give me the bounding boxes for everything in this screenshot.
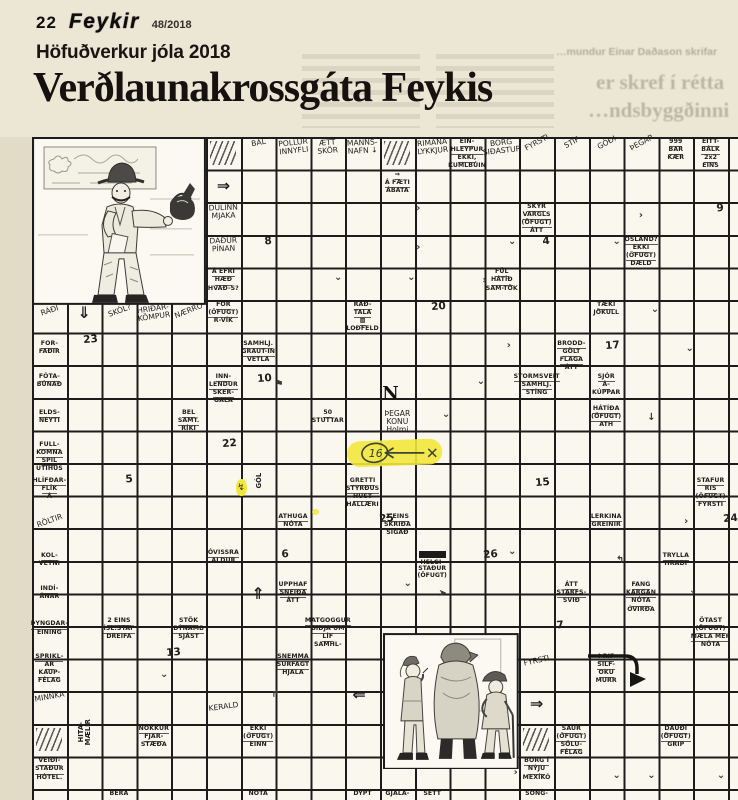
handwritten-clue: ÓVISSRAALDUR: [206, 548, 241, 565]
pen-mark: ⌄: [599, 235, 634, 248]
handwritten-clue: SJÓRÁ-KÚPPAR: [589, 372, 624, 397]
pen-mark: ›: [669, 515, 704, 528]
handwritten-clue: HÁTÍÐA(ÖFUGT)ATH: [589, 404, 624, 429]
handwritten-clue: ELDS-NEYTI: [32, 408, 67, 425]
handwritten-clue: VEIÐI-STAÐURHÓTEL.: [32, 756, 67, 781]
curved-arrow-doodle: [585, 646, 647, 690]
handwritten-clue: ⇒Á FÆTIÁBATA: [380, 170, 415, 195]
redacted-clue: HELGI-STAÐUR(ÖFUGT): [415, 548, 450, 580]
handwritten-clue: 999BARKÆR: [658, 137, 693, 162]
handwritten-clue: SPRIKL-ARKAUP-FÉLAG: [32, 652, 67, 685]
handwritten-clue: BRODD-GÖLTFLAGAÁTT: [554, 339, 589, 372]
handwritten-clue: NÓTA: [241, 789, 276, 798]
handwritten-clue: TRYLLAHRAÐI: [658, 551, 693, 568]
vertical-clue: HITA-MÆLIR: [76, 715, 92, 750]
handwritten-clue: GRETTISTYRÐUSHUSTHALLÆRI: [345, 476, 380, 509]
hatched-cell: [210, 141, 236, 165]
pen-mark: ⌄: [704, 769, 738, 782]
handwritten-clue: INN-LENDURSKER-GALA: [206, 372, 241, 405]
handwritten-clue: SKYRVARGLS(ÖFUGT)ÁTT: [519, 202, 554, 235]
arrow-doodle: ⇑: [241, 584, 276, 603]
handwritten-clue: ÖTAST(ÖFUGT)MÆLA MERNÓTA: [693, 616, 728, 649]
handwritten-clue: FÓTA-BÚNAÐ: [32, 372, 67, 389]
grid-number: 8: [240, 233, 276, 249]
handwritten-clue: TÆKIJÖKULL: [589, 300, 624, 317]
kicker: Höfuðverkur jóla 2018: [36, 42, 230, 64]
handwritten-clue: NOKKURFJAR-STÆÐA: [136, 724, 171, 749]
bleed-through-text: er skref í rétta: [596, 70, 724, 95]
handwritten-clue: STAFURRIS(ÖFUGT)FYRSTI: [693, 476, 728, 509]
arrow-doodle: ⇐: [342, 685, 377, 704]
issue-number: 48/2018: [152, 19, 192, 31]
handwritten-clue: UPPHAFSNEIÐAÁTT: [276, 580, 311, 605]
handwritten-clue: SAUR(ÖFUGT)SÖLU-FÉLAG: [554, 724, 589, 757]
vertical-clue: GÓL: [254, 463, 263, 498]
handwritten-clue: DAÐURPÍNAN: [206, 234, 241, 253]
pen-mark: ↱: [258, 688, 293, 701]
handwritten-clue: BERA: [102, 789, 137, 798]
handwritten-clue: ÞEGARKONUHolmi: [380, 408, 415, 434]
handwritten-clue: 50STUTTAR: [310, 408, 345, 425]
handwritten-clue: SAMHLJ.GRAUT-INVETLA: [241, 339, 276, 364]
newspaper-page: 22 Feykir 48/2018 …mundur Einar Daðason …: [0, 0, 738, 800]
pen-mark: ➤: [425, 587, 460, 600]
handwritten-clue: 2 EINSSKRIÐASIGAÐ: [380, 512, 415, 537]
handwritten-clue: MANNS-NAFN ↓: [345, 136, 381, 156]
pen-mark: ›: [401, 241, 436, 254]
page-title: Verðlaunakrossgáta Feykis: [33, 64, 492, 112]
handwritten-clue: DULINNMJAKA: [206, 202, 241, 221]
handwritten-clue: FULL-KOMNASPILÚTIHÚS: [32, 440, 67, 473]
handwritten-clue: KOL-VETNI: [32, 551, 67, 568]
pen-mark: ⌄: [634, 769, 669, 782]
page-header: 22 Feykir 48/2018 …mundur Einar Daðason …: [0, 0, 738, 137]
handwritten-clue: INDÍ-ÁNAR: [32, 584, 67, 601]
handwritten-clue: POLLURINNYFLI: [275, 135, 311, 157]
pen-mark: ›: [467, 274, 502, 287]
handwritten-clue: GJALA-: [380, 789, 415, 798]
handwritten-clue: EITT-BÁLK2x2EINS: [693, 137, 728, 170]
pen-mark: ⌄: [394, 271, 429, 284]
handwritten-clue: ÁTTSTARFS-SVIÐ: [554, 580, 589, 605]
flame-doodle: ↯: [236, 479, 247, 496]
arrow-doodle: ⇒: [519, 694, 554, 713]
handwritten-clue: SÖNG-: [519, 789, 554, 798]
handwritten-clue: ÞYNGDAR-EINING: [32, 619, 67, 636]
hatched-cell: [523, 728, 549, 752]
compass-letter: N: [373, 382, 408, 403]
handwritten-clue: FOR-FAÐIR: [32, 339, 67, 356]
grid-number: 13: [150, 644, 186, 660]
handwritten-clue: DAUÐI(ÖFUGT)GRIP: [658, 724, 693, 749]
handwritten-clue: RAÐ-TALA▩LOÐFELD: [345, 300, 380, 333]
penned-number: 16: [369, 447, 383, 460]
pen-mark: ↓: [634, 411, 669, 424]
handwritten-clue: ÆTTSKÖR: [310, 136, 346, 156]
handwritten-clue: BELSAMT.RÍKI: [171, 408, 206, 433]
pen-mark: ⌄: [429, 408, 464, 421]
pen-mark: ↰: [603, 554, 638, 567]
handwritten-clue: ATHUGANÓTA: [276, 512, 311, 529]
pen-mark: ⌄: [599, 769, 634, 782]
pen-mark: ⌄: [495, 545, 530, 558]
masthead-row: 22 Feykir 48/2018: [36, 10, 192, 34]
handwritten-clue: Á EFRIHÆÐHVAÐ-S?: [206, 267, 241, 292]
pen-mark: ⌄: [676, 584, 711, 597]
handwritten-clue: EIN-HLEYPUREKKI,KUMLBÚIN: [450, 137, 485, 170]
grid-number: 24: [707, 510, 738, 526]
pen-mark: ⌄: [147, 668, 182, 681]
handwritten-clue: FOR(ÖFUGT)R-VÍK: [206, 300, 241, 325]
highlighter-mark: 16: [345, 437, 444, 470]
pen-mark: ⚑: [262, 378, 297, 391]
man-with-kettle-illustration: [32, 137, 206, 305]
pen-mark: ⌄: [495, 235, 530, 248]
pen-mark: ⌄: [464, 375, 499, 388]
handwritten-clue: FANGKARGANNÓTAÓVIRÐA: [624, 580, 659, 613]
bleed-through-text: …ndsbyggðinni: [588, 98, 729, 123]
hatched-cell: [36, 728, 62, 752]
handwritten-clue: STÖKDÝNAMBSJÁST: [171, 616, 206, 641]
handwritten-clue: RIMANALYKKJUR: [414, 136, 450, 157]
feykir-logo: Feykir: [69, 10, 140, 34]
bleed-through-text: …mundur Einar Daðason skrifar: [556, 46, 717, 58]
three-figures-illustration: [383, 633, 519, 770]
handwritten-clue: DÝPT: [345, 789, 380, 798]
arrow-doodle: ⇓: [67, 303, 102, 322]
handwritten-clue: SETT: [415, 789, 450, 798]
handwritten-clue: EKKI(ÖFUGT)EINN: [241, 724, 276, 749]
highlighter-dot: [312, 509, 319, 515]
handwritten-clue: BORGSIÐASTUR: [484, 135, 520, 157]
handwritten-clue: LERKINAGREINIR: [589, 512, 624, 529]
pen-mark: ›: [624, 209, 659, 222]
pen-mark: ⌄: [638, 303, 673, 316]
page-number: 22: [36, 13, 57, 33]
pen-mark: ⌄: [672, 342, 707, 355]
arrow-doodle: ⇒: [206, 176, 241, 195]
pen-mark: ›: [491, 339, 526, 352]
grid-number: 5: [101, 471, 137, 487]
handwritten-clue: HLÍFÐAR-FLÍKÁ: [32, 476, 67, 501]
pen-mark: ›: [401, 202, 436, 215]
pen-mark: ⌄: [321, 271, 356, 284]
handwritten-clue: 2 EINSÍSL.STAFDREIFA: [102, 616, 137, 641]
pen-mark: ⌄: [390, 577, 425, 590]
handwritten-clue: SNEMMASURFAGTHJALA: [276, 652, 311, 677]
grid-number: 23: [66, 331, 102, 347]
grid-number: 6: [258, 546, 294, 562]
hatched-cell: [384, 141, 410, 165]
handwritten-clue: STORMSVEITSAMHLJ.STÍNG: [519, 372, 554, 397]
handwritten-clue: MATGOGGURBIÐJA UMLÍFSAMHL-: [310, 616, 345, 649]
